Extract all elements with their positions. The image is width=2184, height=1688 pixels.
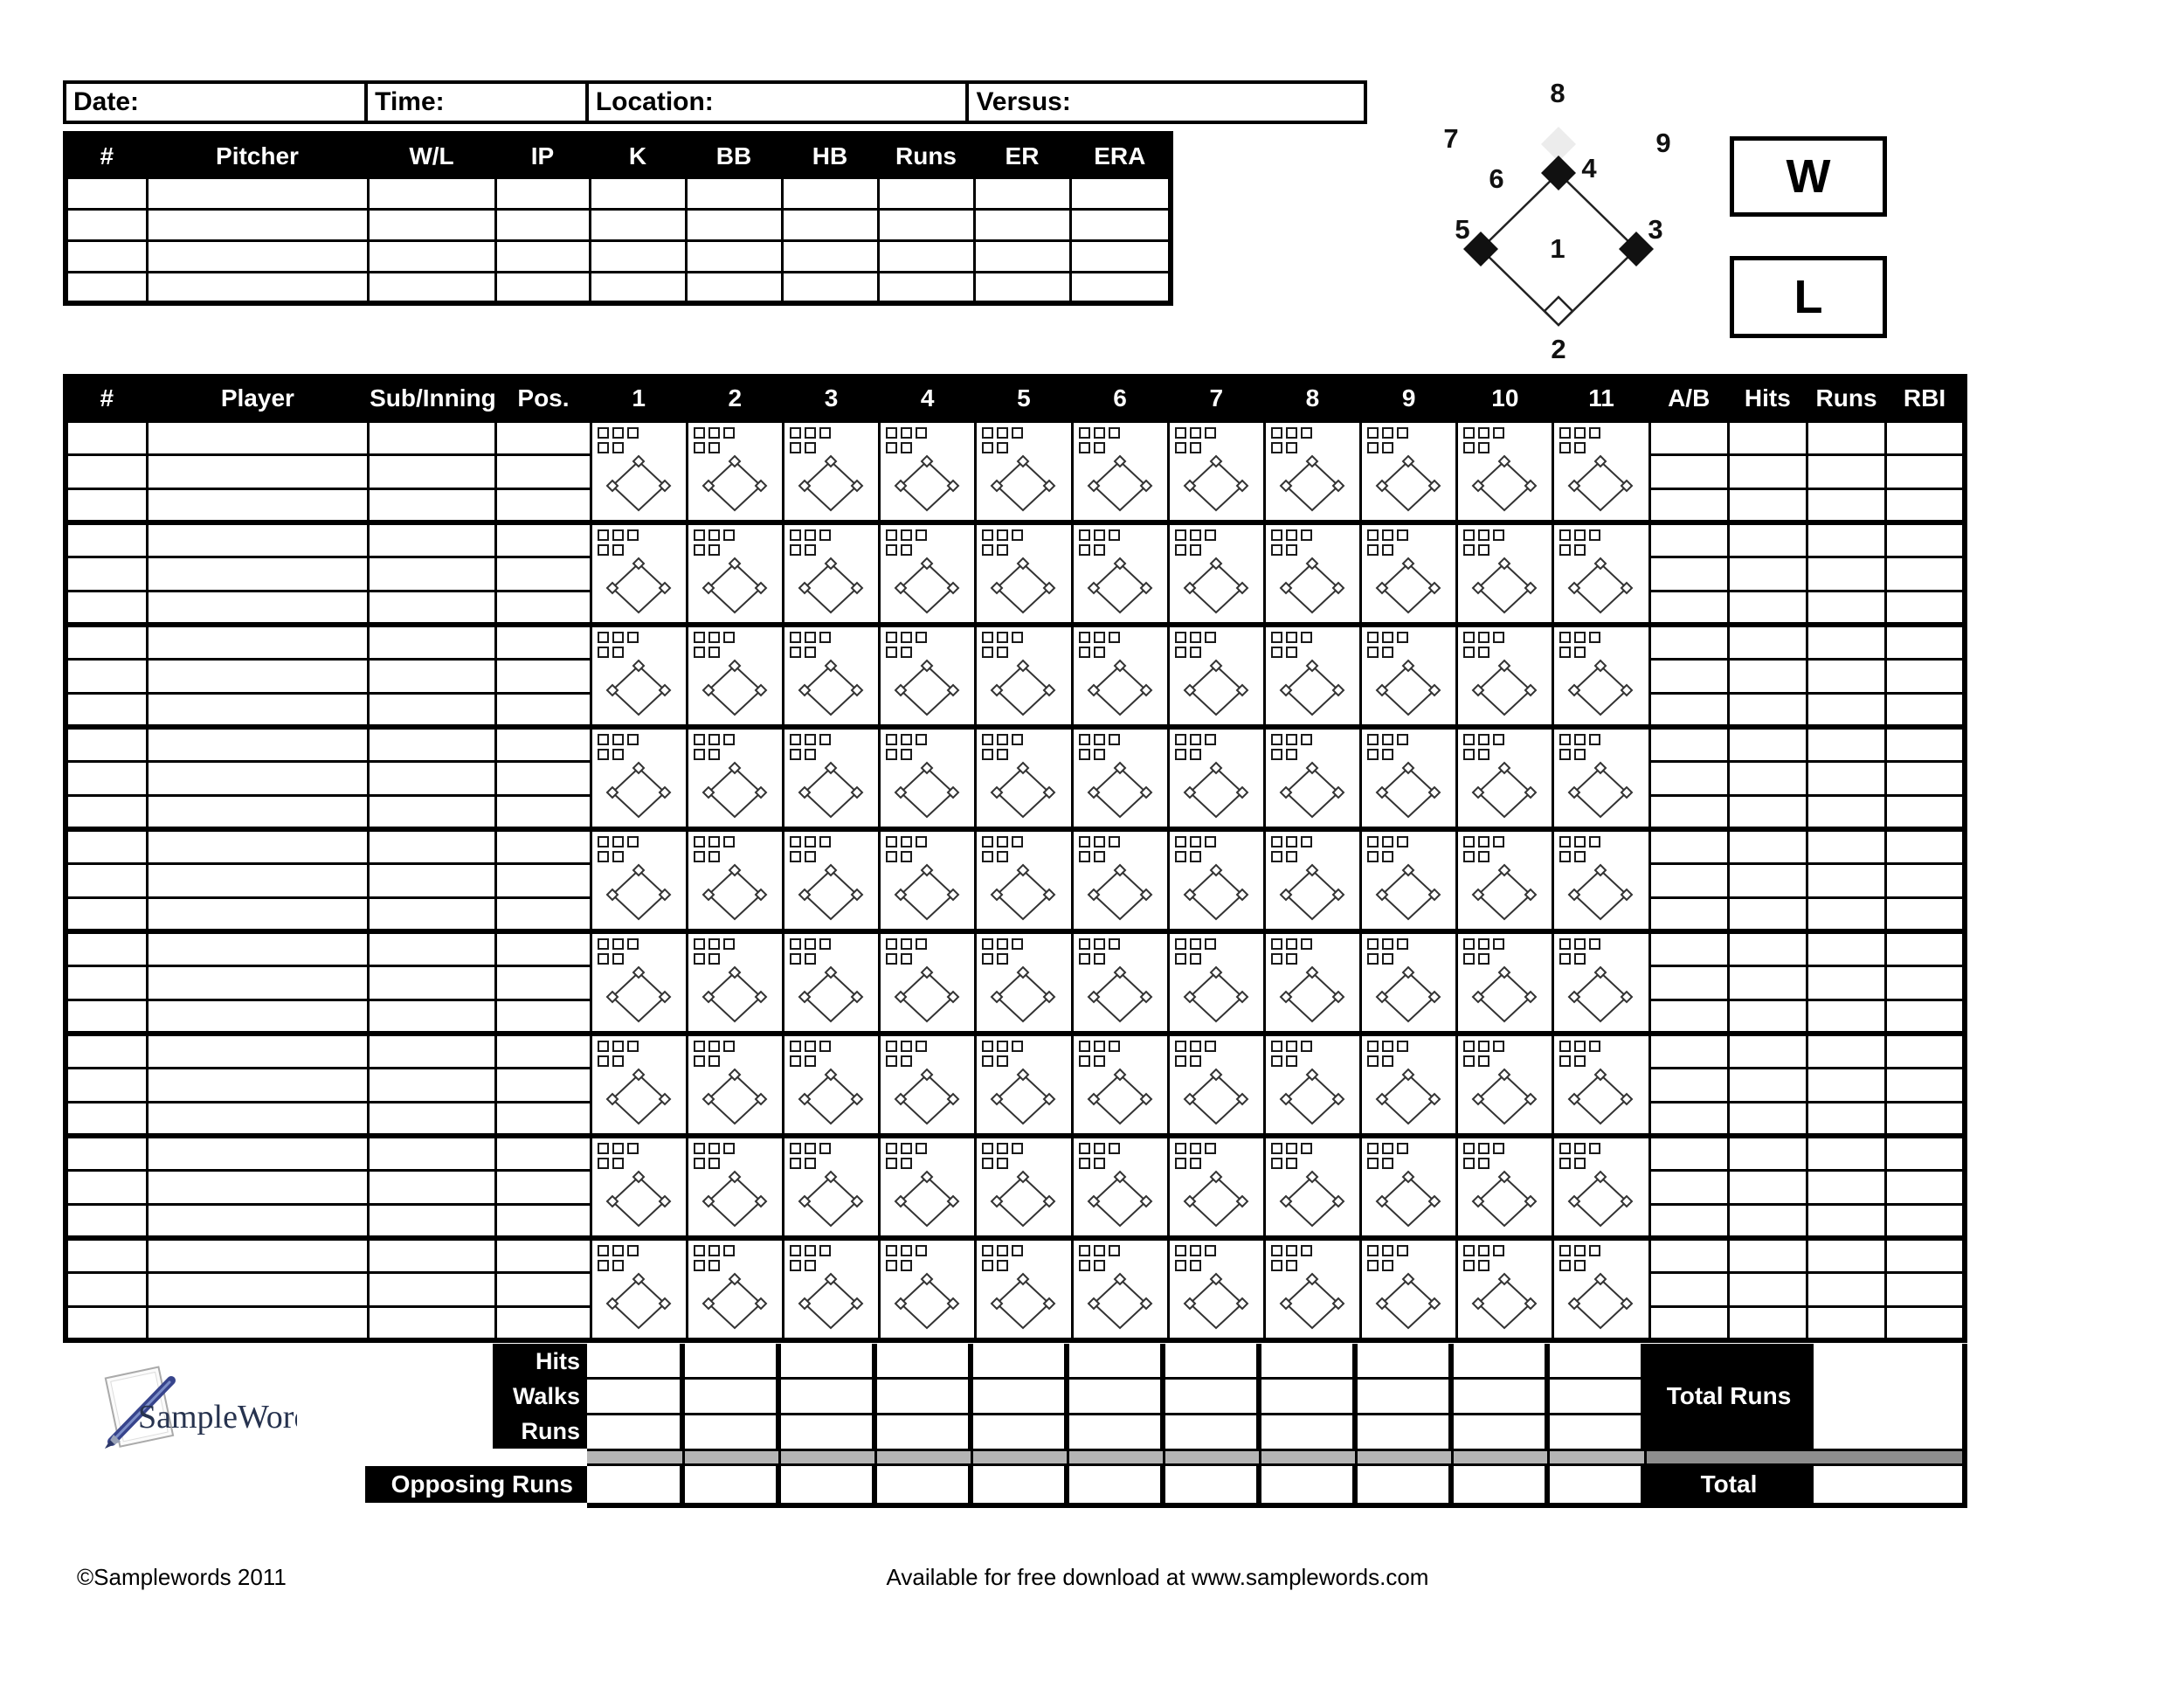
- player-name-cell[interactable]: [147, 625, 368, 659]
- opposing-runs-cell[interactable]: [1069, 1466, 1160, 1503]
- summary-walks-cell[interactable]: [1261, 1380, 1352, 1413]
- player-name-cell[interactable]: [147, 693, 368, 727]
- sub-inning-cell[interactable]: [369, 931, 496, 965]
- pitch-count-checkbox[interactable]: [598, 1041, 609, 1052]
- opposing-runs-cell[interactable]: [1165, 1466, 1256, 1503]
- inning-scoring-cell[interactable]: [976, 727, 1072, 829]
- inning-scoring-cell[interactable]: [783, 727, 879, 829]
- pitch-count-checkbox[interactable]: [1109, 734, 1120, 745]
- at-bats-cell[interactable]: [1649, 693, 1728, 727]
- pitch-count-checkbox[interactable]: [1559, 734, 1571, 745]
- hits-cell[interactable]: [1728, 1034, 1807, 1068]
- at-bats-cell[interactable]: [1649, 659, 1728, 693]
- player-name-cell[interactable]: [147, 1306, 368, 1340]
- pitch-count-checkbox[interactable]: [805, 836, 816, 847]
- pitch-count-checkbox[interactable]: [1012, 1143, 1023, 1154]
- pitch-count-checkbox[interactable]: [997, 938, 1008, 950]
- at-bats-cell[interactable]: [1649, 1034, 1728, 1068]
- opposing-runs-cell[interactable]: [1358, 1466, 1448, 1503]
- pitch-count-checkbox[interactable]: [598, 734, 609, 745]
- pitch-count-checkbox[interactable]: [627, 1143, 639, 1154]
- pitch-count-checkbox[interactable]: [708, 529, 720, 541]
- pitcher-entry-cell[interactable]: [974, 177, 1070, 209]
- inning-scoring-cell[interactable]: [880, 829, 976, 931]
- sub-inning-cell[interactable]: [369, 591, 496, 625]
- runs-cell[interactable]: [1807, 420, 1885, 454]
- inning-scoring-cell[interactable]: [976, 829, 1072, 931]
- pitch-count-checkbox[interactable]: [1012, 1245, 1023, 1256]
- pitch-count-checkbox[interactable]: [612, 836, 624, 847]
- at-bats-cell[interactable]: [1649, 557, 1728, 591]
- pitch-count-checkbox[interactable]: [694, 1245, 705, 1256]
- position-cell[interactable]: [496, 1000, 591, 1034]
- pitch-count-checkbox[interactable]: [1271, 632, 1282, 643]
- pitcher-entry-cell[interactable]: [686, 272, 782, 303]
- pitch-count-checkbox[interactable]: [1205, 1041, 1216, 1052]
- summary-hits-cell[interactable]: [973, 1344, 1064, 1377]
- pitch-count-checkbox[interactable]: [1574, 1041, 1586, 1052]
- pitch-count-checkbox[interactable]: [886, 836, 897, 847]
- player-name-cell[interactable]: [147, 931, 368, 965]
- inning-scoring-cell[interactable]: [1168, 931, 1264, 1034]
- pitch-count-checkbox[interactable]: [916, 529, 927, 541]
- hits-cell[interactable]: [1728, 659, 1807, 693]
- pitch-count-checkbox[interactable]: [1559, 1041, 1571, 1052]
- inning-scoring-cell[interactable]: [880, 522, 976, 625]
- inning-scoring-cell[interactable]: [1361, 420, 1457, 522]
- player-number-cell[interactable]: [66, 625, 147, 659]
- pitch-count-checkbox[interactable]: [1175, 1143, 1186, 1154]
- pitch-count-checkbox[interactable]: [612, 1245, 624, 1256]
- at-bats-cell[interactable]: [1649, 727, 1728, 761]
- pitch-count-checkbox[interactable]: [1367, 938, 1379, 950]
- pitch-count-checkbox[interactable]: [627, 529, 639, 541]
- pitch-count-checkbox[interactable]: [901, 1143, 912, 1154]
- sub-inning-cell[interactable]: [369, 1000, 496, 1034]
- pitch-count-checkbox[interactable]: [1367, 632, 1379, 643]
- position-cell[interactable]: [496, 829, 591, 863]
- inning-scoring-cell[interactable]: [1553, 1034, 1649, 1136]
- hits-cell[interactable]: [1728, 420, 1807, 454]
- inning-scoring-cell[interactable]: [1361, 522, 1457, 625]
- pitch-count-checkbox[interactable]: [1397, 734, 1408, 745]
- runs-cell[interactable]: [1807, 1068, 1885, 1102]
- pitch-count-checkbox[interactable]: [819, 938, 831, 950]
- hits-cell[interactable]: [1728, 1102, 1807, 1136]
- runs-cell[interactable]: [1807, 727, 1885, 761]
- pitch-count-checkbox[interactable]: [1175, 632, 1186, 643]
- pitch-count-checkbox[interactable]: [1382, 632, 1393, 643]
- pitch-count-checkbox[interactable]: [1205, 1143, 1216, 1154]
- pitch-count-checkbox[interactable]: [1286, 1245, 1297, 1256]
- pitcher-entry-cell[interactable]: [878, 209, 974, 240]
- pitch-count-checkbox[interactable]: [790, 529, 801, 541]
- inning-scoring-cell[interactable]: [783, 1034, 879, 1136]
- pitch-count-checkbox[interactable]: [1109, 836, 1120, 847]
- pitcher-entry-cell[interactable]: [686, 177, 782, 209]
- at-bats-cell[interactable]: [1649, 931, 1728, 965]
- player-name-cell[interactable]: [147, 1102, 368, 1136]
- sub-inning-cell[interactable]: [369, 488, 496, 522]
- pitch-count-checkbox[interactable]: [1175, 734, 1186, 745]
- pitch-count-checkbox[interactable]: [1574, 427, 1586, 439]
- opposing-runs-cell[interactable]: [781, 1466, 872, 1503]
- pitch-count-checkbox[interactable]: [1012, 938, 1023, 950]
- pitch-count-checkbox[interactable]: [790, 1143, 801, 1154]
- summary-hits-cell[interactable]: [685, 1344, 776, 1377]
- pitch-count-checkbox[interactable]: [901, 734, 912, 745]
- rbi-cell[interactable]: [1886, 795, 1965, 829]
- position-cell[interactable]: [496, 1136, 591, 1170]
- hits-cell[interactable]: [1728, 829, 1807, 863]
- pitch-count-checkbox[interactable]: [901, 836, 912, 847]
- pitch-count-checkbox[interactable]: [1286, 632, 1297, 643]
- runs-cell[interactable]: [1807, 693, 1885, 727]
- summary-runs-cell[interactable]: [587, 1415, 680, 1449]
- summary-hits-cell[interactable]: [1069, 1344, 1160, 1377]
- inning-scoring-cell[interactable]: [1072, 522, 1168, 625]
- pitch-count-checkbox[interactable]: [723, 427, 735, 439]
- pitch-count-checkbox[interactable]: [997, 427, 1008, 439]
- pitch-count-checkbox[interactable]: [1190, 938, 1201, 950]
- pitch-count-checkbox[interactable]: [723, 938, 735, 950]
- rbi-cell[interactable]: [1886, 829, 1965, 863]
- inning-scoring-cell[interactable]: [1553, 829, 1649, 931]
- pitch-count-checkbox[interactable]: [708, 1041, 720, 1052]
- pitch-count-checkbox[interactable]: [1205, 427, 1216, 439]
- sub-inning-cell[interactable]: [369, 863, 496, 897]
- pitch-count-checkbox[interactable]: [1397, 836, 1408, 847]
- pitch-count-checkbox[interactable]: [886, 1245, 897, 1256]
- pitch-count-checkbox[interactable]: [790, 836, 801, 847]
- summary-walks-cell[interactable]: [973, 1380, 1064, 1413]
- pitch-count-checkbox[interactable]: [723, 836, 735, 847]
- runs-cell[interactable]: [1807, 1136, 1885, 1170]
- rbi-cell[interactable]: [1886, 1136, 1965, 1170]
- at-bats-cell[interactable]: [1649, 863, 1728, 897]
- pitch-count-checkbox[interactable]: [819, 1245, 831, 1256]
- pitch-count-checkbox[interactable]: [1012, 632, 1023, 643]
- opposing-runs-cell[interactable]: [1550, 1466, 1641, 1503]
- opposing-runs-cell[interactable]: [877, 1466, 968, 1503]
- sub-inning-cell[interactable]: [369, 1170, 496, 1204]
- player-number-cell[interactable]: [66, 931, 147, 965]
- inning-scoring-cell[interactable]: [1553, 727, 1649, 829]
- rbi-cell[interactable]: [1886, 761, 1965, 795]
- time-field[interactable]: Time:: [368, 84, 589, 121]
- pitch-count-checkbox[interactable]: [982, 734, 993, 745]
- pitch-count-checkbox[interactable]: [1589, 1041, 1600, 1052]
- player-number-cell[interactable]: [66, 897, 147, 931]
- sub-inning-cell[interactable]: [369, 1272, 496, 1306]
- pitch-count-checkbox[interactable]: [694, 427, 705, 439]
- pitch-count-checkbox[interactable]: [1286, 427, 1297, 439]
- pitch-count-checkbox[interactable]: [1559, 1143, 1571, 1154]
- inning-scoring-cell[interactable]: [1072, 625, 1168, 727]
- rbi-cell[interactable]: [1886, 727, 1965, 761]
- pitch-count-checkbox[interactable]: [1367, 1143, 1379, 1154]
- inning-scoring-cell[interactable]: [880, 1136, 976, 1238]
- rbi-cell[interactable]: [1886, 454, 1965, 488]
- total-runs-value-box[interactable]: [1814, 1344, 1962, 1449]
- runs-cell[interactable]: [1807, 591, 1885, 625]
- inning-scoring-cell[interactable]: [1457, 1136, 1553, 1238]
- summary-hits-cell[interactable]: [587, 1344, 680, 1377]
- player-number-cell[interactable]: [66, 1204, 147, 1238]
- pitch-count-checkbox[interactable]: [1205, 632, 1216, 643]
- inning-scoring-cell[interactable]: [1361, 829, 1457, 931]
- pitch-count-checkbox[interactable]: [694, 632, 705, 643]
- pitch-count-checkbox[interactable]: [1463, 427, 1475, 439]
- pitch-count-checkbox[interactable]: [1175, 836, 1186, 847]
- pitch-count-checkbox[interactable]: [708, 427, 720, 439]
- inning-scoring-cell[interactable]: [1168, 829, 1264, 931]
- pitch-count-checkbox[interactable]: [1301, 734, 1312, 745]
- inning-scoring-cell[interactable]: [1361, 931, 1457, 1034]
- pitch-count-checkbox[interactable]: [1397, 1041, 1408, 1052]
- at-bats-cell[interactable]: [1649, 522, 1728, 557]
- pitch-count-checkbox[interactable]: [1271, 836, 1282, 847]
- loss-box[interactable]: L: [1730, 256, 1887, 338]
- summary-hits-cell[interactable]: [1261, 1344, 1352, 1377]
- hits-cell[interactable]: [1728, 591, 1807, 625]
- inning-scoring-cell[interactable]: [1553, 931, 1649, 1034]
- inning-scoring-cell[interactable]: [976, 1238, 1072, 1340]
- inning-scoring-cell[interactable]: [1264, 931, 1360, 1034]
- player-name-cell[interactable]: [147, 761, 368, 795]
- pitch-count-checkbox[interactable]: [1478, 1143, 1489, 1154]
- pitch-count-checkbox[interactable]: [598, 632, 609, 643]
- hits-cell[interactable]: [1728, 863, 1807, 897]
- pitch-count-checkbox[interactable]: [1301, 529, 1312, 541]
- pitch-count-checkbox[interactable]: [598, 1245, 609, 1256]
- inning-scoring-cell[interactable]: [591, 1238, 687, 1340]
- inning-scoring-cell[interactable]: [687, 931, 783, 1034]
- pitch-count-checkbox[interactable]: [694, 938, 705, 950]
- pitch-count-checkbox[interactable]: [1205, 1245, 1216, 1256]
- sub-inning-cell[interactable]: [369, 761, 496, 795]
- hits-cell[interactable]: [1728, 1136, 1807, 1170]
- pitch-count-checkbox[interactable]: [1463, 1143, 1475, 1154]
- pitch-count-checkbox[interactable]: [1574, 529, 1586, 541]
- pitch-count-checkbox[interactable]: [901, 632, 912, 643]
- inning-scoring-cell[interactable]: [1264, 829, 1360, 931]
- sub-inning-cell[interactable]: [369, 897, 496, 931]
- runs-cell[interactable]: [1807, 1170, 1885, 1204]
- pitch-count-checkbox[interactable]: [612, 1041, 624, 1052]
- pitch-count-checkbox[interactable]: [1589, 1143, 1600, 1154]
- summary-hits-cell[interactable]: [1454, 1344, 1545, 1377]
- inning-scoring-cell[interactable]: [1168, 1034, 1264, 1136]
- pitch-count-checkbox[interactable]: [886, 1143, 897, 1154]
- player-name-cell[interactable]: [147, 1272, 368, 1306]
- summary-walks-cell[interactable]: [1069, 1380, 1160, 1413]
- inning-scoring-cell[interactable]: [1361, 1238, 1457, 1340]
- pitch-count-checkbox[interactable]: [1079, 1143, 1090, 1154]
- pitch-count-checkbox[interactable]: [1271, 1245, 1282, 1256]
- position-cell[interactable]: [496, 795, 591, 829]
- runs-cell[interactable]: [1807, 1306, 1885, 1340]
- player-number-cell[interactable]: [66, 1170, 147, 1204]
- player-name-cell[interactable]: [147, 795, 368, 829]
- sub-inning-cell[interactable]: [369, 795, 496, 829]
- sub-inning-cell[interactable]: [369, 727, 496, 761]
- hits-cell[interactable]: [1728, 761, 1807, 795]
- inning-scoring-cell[interactable]: [1168, 522, 1264, 625]
- pitch-count-checkbox[interactable]: [901, 1041, 912, 1052]
- position-cell[interactable]: [496, 1204, 591, 1238]
- pitcher-entry-cell[interactable]: [368, 272, 495, 303]
- pitch-count-checkbox[interactable]: [1190, 1143, 1201, 1154]
- pitch-count-checkbox[interactable]: [627, 938, 639, 950]
- inning-scoring-cell[interactable]: [1553, 420, 1649, 522]
- inning-scoring-cell[interactable]: [591, 931, 687, 1034]
- summary-hits-cell[interactable]: [1550, 1344, 1641, 1377]
- pitch-count-checkbox[interactable]: [916, 734, 927, 745]
- pitcher-entry-cell[interactable]: [686, 209, 782, 240]
- pitch-count-checkbox[interactable]: [1478, 734, 1489, 745]
- player-name-cell[interactable]: [147, 727, 368, 761]
- inning-scoring-cell[interactable]: [1072, 420, 1168, 522]
- pitch-count-checkbox[interactable]: [612, 1143, 624, 1154]
- pitcher-entry-cell[interactable]: [686, 240, 782, 272]
- pitch-count-checkbox[interactable]: [1109, 1143, 1120, 1154]
- pitch-count-checkbox[interactable]: [1478, 836, 1489, 847]
- at-bats-cell[interactable]: [1649, 1102, 1728, 1136]
- pitcher-entry-cell[interactable]: [878, 272, 974, 303]
- pitcher-entry-cell[interactable]: [368, 177, 495, 209]
- runs-cell[interactable]: [1807, 659, 1885, 693]
- at-bats-cell[interactable]: [1649, 897, 1728, 931]
- rbi-cell[interactable]: [1886, 1000, 1965, 1034]
- location-field[interactable]: Location:: [589, 84, 970, 121]
- pitch-count-checkbox[interactable]: [1012, 427, 1023, 439]
- pitch-count-checkbox[interactable]: [819, 734, 831, 745]
- pitch-count-checkbox[interactable]: [916, 1245, 927, 1256]
- pitch-count-checkbox[interactable]: [1397, 938, 1408, 950]
- player-number-cell[interactable]: [66, 557, 147, 591]
- inning-scoring-cell[interactable]: [1264, 727, 1360, 829]
- sub-inning-cell[interactable]: [369, 625, 496, 659]
- inning-scoring-cell[interactable]: [783, 625, 879, 727]
- pitch-count-checkbox[interactable]: [790, 427, 801, 439]
- pitch-count-checkbox[interactable]: [598, 836, 609, 847]
- inning-scoring-cell[interactable]: [1264, 420, 1360, 522]
- pitch-count-checkbox[interactable]: [1271, 1041, 1282, 1052]
- pitch-count-checkbox[interactable]: [1493, 1041, 1504, 1052]
- hits-cell[interactable]: [1728, 693, 1807, 727]
- pitch-count-checkbox[interactable]: [1382, 529, 1393, 541]
- summary-walks-cell[interactable]: [877, 1380, 968, 1413]
- pitcher-entry-cell[interactable]: [590, 177, 686, 209]
- pitcher-entry-cell[interactable]: [495, 240, 590, 272]
- pitch-count-checkbox[interactable]: [819, 427, 831, 439]
- rbi-cell[interactable]: [1886, 522, 1965, 557]
- pitch-count-checkbox[interactable]: [1493, 529, 1504, 541]
- opposing-runs-cell[interactable]: [587, 1466, 680, 1503]
- player-number-cell[interactable]: [66, 1102, 147, 1136]
- pitch-count-checkbox[interactable]: [1589, 427, 1600, 439]
- runs-cell[interactable]: [1807, 795, 1885, 829]
- inning-scoring-cell[interactable]: [1553, 625, 1649, 727]
- player-number-cell[interactable]: [66, 795, 147, 829]
- pitch-count-checkbox[interactable]: [1478, 1245, 1489, 1256]
- hits-cell[interactable]: [1728, 1238, 1807, 1272]
- inning-scoring-cell[interactable]: [783, 420, 879, 522]
- pitch-count-checkbox[interactable]: [1493, 427, 1504, 439]
- pitch-count-checkbox[interactable]: [1190, 1041, 1201, 1052]
- pitch-count-checkbox[interactable]: [612, 632, 624, 643]
- pitch-count-checkbox[interactable]: [1574, 734, 1586, 745]
- pitch-count-checkbox[interactable]: [1367, 529, 1379, 541]
- pitch-count-checkbox[interactable]: [1493, 632, 1504, 643]
- pitch-count-checkbox[interactable]: [1094, 836, 1105, 847]
- inning-scoring-cell[interactable]: [1072, 931, 1168, 1034]
- pitch-count-checkbox[interactable]: [1271, 938, 1282, 950]
- inning-scoring-cell[interactable]: [880, 1238, 976, 1340]
- at-bats-cell[interactable]: [1649, 761, 1728, 795]
- pitch-count-checkbox[interactable]: [627, 1041, 639, 1052]
- at-bats-cell[interactable]: [1649, 1306, 1728, 1340]
- inning-scoring-cell[interactable]: [591, 1034, 687, 1136]
- player-name-cell[interactable]: [147, 863, 368, 897]
- inning-scoring-cell[interactable]: [1072, 1238, 1168, 1340]
- pitch-count-checkbox[interactable]: [1463, 1041, 1475, 1052]
- player-number-cell[interactable]: [66, 693, 147, 727]
- pitch-count-checkbox[interactable]: [1271, 1143, 1282, 1154]
- player-number-cell[interactable]: [66, 727, 147, 761]
- sub-inning-cell[interactable]: [369, 454, 496, 488]
- pitch-count-checkbox[interactable]: [1493, 938, 1504, 950]
- pitch-count-checkbox[interactable]: [1463, 529, 1475, 541]
- hits-cell[interactable]: [1728, 931, 1807, 965]
- pitch-count-checkbox[interactable]: [694, 1041, 705, 1052]
- pitch-count-checkbox[interactable]: [1367, 836, 1379, 847]
- pitch-count-checkbox[interactable]: [790, 632, 801, 643]
- inning-scoring-cell[interactable]: [591, 727, 687, 829]
- player-number-cell[interactable]: [66, 488, 147, 522]
- player-name-cell[interactable]: [147, 591, 368, 625]
- pitch-count-checkbox[interactable]: [1463, 632, 1475, 643]
- hits-cell[interactable]: [1728, 488, 1807, 522]
- inning-scoring-cell[interactable]: [591, 625, 687, 727]
- summary-hits-cell[interactable]: [781, 1344, 872, 1377]
- pitch-count-checkbox[interactable]: [805, 1245, 816, 1256]
- pitch-count-checkbox[interactable]: [1382, 1041, 1393, 1052]
- pitch-count-checkbox[interactable]: [805, 1143, 816, 1154]
- pitch-count-checkbox[interactable]: [1301, 1041, 1312, 1052]
- pitch-count-checkbox[interactable]: [916, 1041, 927, 1052]
- inning-scoring-cell[interactable]: [783, 522, 879, 625]
- rbi-cell[interactable]: [1886, 1238, 1965, 1272]
- player-name-cell[interactable]: [147, 965, 368, 1000]
- pitcher-entry-cell[interactable]: [782, 177, 878, 209]
- pitch-count-checkbox[interactable]: [901, 427, 912, 439]
- pitch-count-checkbox[interactable]: [997, 734, 1008, 745]
- player-number-cell[interactable]: [66, 863, 147, 897]
- at-bats-cell[interactable]: [1649, 829, 1728, 863]
- pitch-count-checkbox[interactable]: [1559, 836, 1571, 847]
- rbi-cell[interactable]: [1886, 965, 1965, 1000]
- inning-scoring-cell[interactable]: [1361, 727, 1457, 829]
- pitch-count-checkbox[interactable]: [916, 836, 927, 847]
- inning-scoring-cell[interactable]: [1168, 727, 1264, 829]
- pitch-count-checkbox[interactable]: [805, 734, 816, 745]
- summary-walks-cell[interactable]: [781, 1380, 872, 1413]
- inning-scoring-cell[interactable]: [783, 1136, 879, 1238]
- player-name-cell[interactable]: [147, 1136, 368, 1170]
- pitcher-entry-cell[interactable]: [878, 240, 974, 272]
